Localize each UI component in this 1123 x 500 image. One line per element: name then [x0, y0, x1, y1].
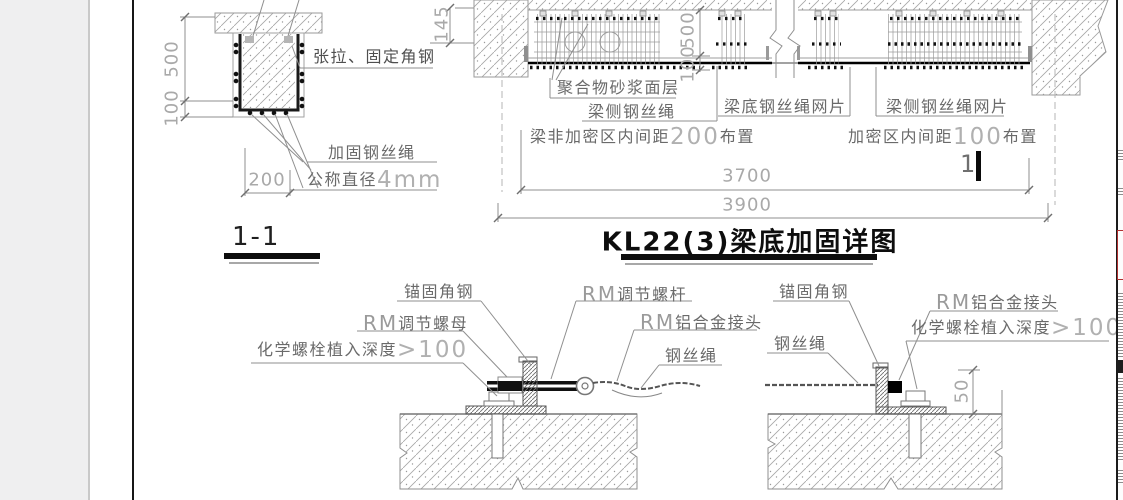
label-reinforce-wire-rope: 加固钢丝绳: [328, 144, 416, 162]
titleblock-text-mark: [1118, 378, 1123, 462]
label-chemical-bolt-depth-left: 化学螺栓植入深度>100: [257, 339, 468, 362]
dim-50: 50: [952, 379, 973, 404]
titleblock-text-mark: [1118, 150, 1123, 162]
label-rm-adjust-rod: RM调节螺杆: [582, 283, 687, 305]
label-rm-aluminum-connector-left: RM铝合金接头: [640, 311, 763, 333]
label-dense-spacing: 加密区内间距100布置: [848, 126, 1038, 149]
dim-100-section: 100: [162, 89, 183, 126]
label-wire-rope-right: 钢丝绳: [774, 335, 827, 353]
titleblock-black-cell: [1117, 360, 1123, 373]
label-beam-side-wire-rope: 梁侧钢丝绳: [588, 103, 676, 121]
drawing-title: KL22(3)梁底加固详图: [602, 222, 899, 259]
dense-spacing-value: 100: [953, 124, 1003, 150]
titleblock-text-mark: [1118, 293, 1123, 357]
label-polymer-mortar-layer: 聚合物砂浆面层: [557, 79, 680, 97]
section-name-1-1: 1-1: [232, 222, 280, 252]
label-wire-rope-left: 钢丝绳: [665, 347, 718, 365]
section-1-1-linework: [180, 0, 437, 264]
label-tension-fixed-angle: 张拉、固定角钢: [313, 48, 436, 66]
label-rm-adjust-nut: RM调节螺母: [363, 312, 468, 334]
titleblock-highlight-red: [1117, 230, 1123, 280]
label-nominal-diameter: 公称直径4mm: [307, 169, 442, 192]
label-anchor-angle-left: 锚固角钢: [404, 283, 474, 301]
cad-viewer: 500 100 200 张拉、固定角钢 加固钢丝绳 公称直径4mm 1-1 14…: [0, 0, 1123, 500]
active-text-edit[interactable]: 1: [960, 150, 975, 178]
titleblock-text-mark: [1118, 188, 1123, 197]
dim-3700: 3700: [722, 166, 772, 187]
dim-3900: 3900: [722, 195, 772, 216]
dim-100-elevation: 100: [678, 45, 699, 82]
dim-200-section: 200: [248, 170, 285, 191]
label-beam-side-mesh: 梁侧钢丝绳网片: [886, 98, 1009, 116]
dim-500-elevation: 500: [678, 11, 699, 48]
titleblock-text-mark: [1118, 470, 1123, 484]
non-dense-spacing-value: 200: [670, 124, 720, 150]
text-cursor[interactable]: [976, 151, 981, 181]
chemical-bolt-depth-value-right: >100: [1051, 315, 1122, 341]
label-anchor-angle-right: 锚固角钢: [779, 283, 849, 301]
chemical-bolt-depth-value-left: >100: [397, 337, 468, 363]
label-non-dense-spacing: 梁非加密区内间距200布置: [530, 126, 755, 149]
label-chemical-bolt-depth-right: 化学螺栓植入深度>100: [911, 317, 1122, 340]
label-rm-aluminum-connector-right: RM铝合金接头: [936, 291, 1059, 313]
dim-145: 145: [432, 5, 453, 42]
label-beam-bottom-mesh: 梁底钢丝绳网片: [724, 98, 847, 116]
dim-500-section: 500: [162, 40, 183, 77]
nominal-diameter-value: 4mm: [377, 167, 442, 193]
